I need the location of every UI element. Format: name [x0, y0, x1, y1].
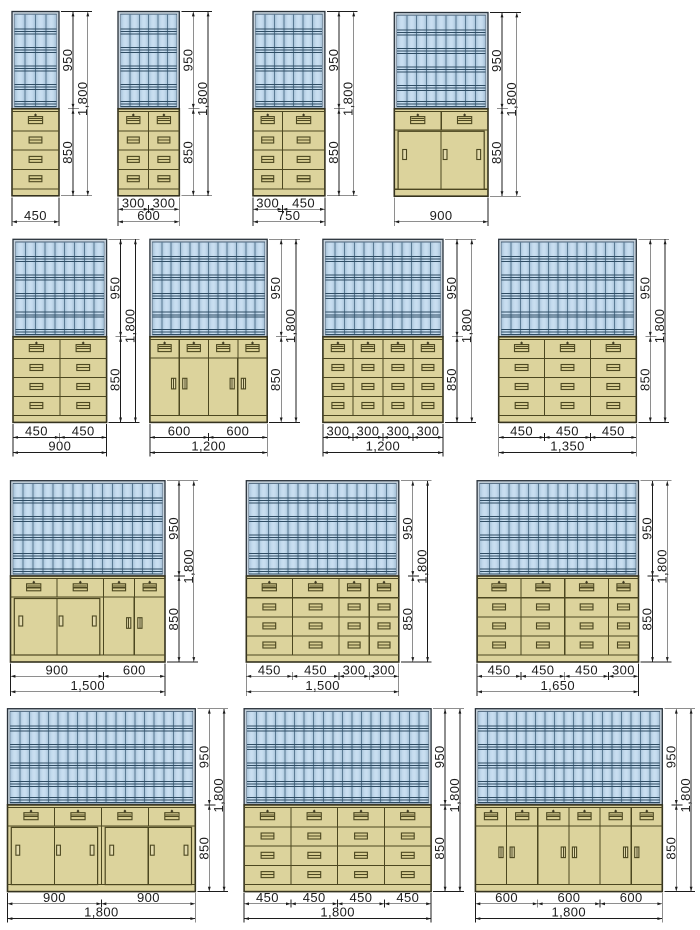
- svg-text:300: 300: [356, 423, 379, 438]
- svg-text:850: 850: [326, 141, 341, 164]
- svg-text:450: 450: [24, 208, 47, 223]
- svg-text:850: 850: [166, 608, 181, 631]
- svg-text:1,800: 1,800: [504, 82, 519, 117]
- svg-text:600: 600: [557, 890, 580, 905]
- svg-text:950: 950: [663, 745, 678, 768]
- svg-text:850: 850: [663, 837, 678, 860]
- svg-text:1,350: 1,350: [550, 439, 585, 454]
- svg-text:300: 300: [416, 423, 439, 438]
- svg-text:1,800: 1,800: [678, 778, 693, 813]
- svg-text:1,200: 1,200: [366, 439, 401, 454]
- svg-text:600: 600: [168, 423, 191, 438]
- svg-text:1,800: 1,800: [341, 81, 356, 116]
- svg-text:900: 900: [46, 662, 69, 677]
- svg-text:1,800: 1,800: [122, 309, 137, 344]
- svg-text:1,800: 1,800: [447, 778, 462, 813]
- svg-text:450: 450: [350, 890, 373, 905]
- svg-text:950: 950: [166, 517, 181, 540]
- svg-text:850: 850: [60, 141, 75, 164]
- svg-text:450: 450: [25, 423, 48, 438]
- svg-text:600: 600: [137, 208, 160, 223]
- svg-text:450: 450: [602, 423, 625, 438]
- svg-text:1,200: 1,200: [191, 439, 226, 454]
- svg-text:850: 850: [400, 608, 415, 631]
- svg-text:950: 950: [432, 745, 447, 768]
- svg-text:300: 300: [326, 423, 349, 438]
- svg-text:1,800: 1,800: [181, 549, 196, 584]
- svg-text:1,800: 1,800: [211, 778, 226, 813]
- svg-text:850: 850: [196, 837, 211, 860]
- svg-text:300: 300: [256, 195, 279, 210]
- svg-text:450: 450: [256, 890, 279, 905]
- svg-text:1,800: 1,800: [320, 905, 355, 920]
- svg-text:1,800: 1,800: [283, 309, 298, 344]
- svg-text:1,800: 1,800: [84, 905, 119, 920]
- svg-text:900: 900: [430, 208, 453, 223]
- svg-text:1,650: 1,650: [541, 678, 576, 693]
- svg-text:450: 450: [303, 890, 326, 905]
- svg-text:850: 850: [108, 368, 123, 391]
- svg-text:850: 850: [489, 141, 504, 164]
- svg-text:450: 450: [72, 423, 95, 438]
- svg-text:1,500: 1,500: [305, 678, 340, 693]
- svg-text:950: 950: [444, 277, 459, 300]
- svg-text:450: 450: [531, 662, 554, 677]
- svg-text:450: 450: [556, 423, 579, 438]
- svg-text:1,800: 1,800: [459, 309, 474, 344]
- svg-text:1,800: 1,800: [415, 549, 430, 584]
- svg-text:1,800: 1,800: [195, 81, 210, 116]
- svg-text:900: 900: [48, 439, 71, 454]
- svg-text:1,500: 1,500: [71, 678, 106, 693]
- svg-text:450: 450: [258, 662, 281, 677]
- svg-text:850: 850: [640, 608, 655, 631]
- svg-text:450: 450: [488, 662, 511, 677]
- svg-text:850: 850: [637, 368, 652, 391]
- svg-text:1,800: 1,800: [652, 309, 667, 344]
- svg-text:300: 300: [373, 662, 396, 677]
- svg-text:600: 600: [123, 662, 146, 677]
- svg-text:300: 300: [612, 662, 635, 677]
- svg-text:600: 600: [620, 890, 643, 905]
- svg-text:950: 950: [637, 277, 652, 300]
- svg-text:450: 450: [575, 662, 598, 677]
- svg-text:950: 950: [60, 49, 75, 72]
- svg-text:1,800: 1,800: [75, 81, 90, 116]
- svg-text:450: 450: [396, 890, 419, 905]
- svg-text:950: 950: [640, 517, 655, 540]
- svg-text:950: 950: [180, 49, 195, 72]
- svg-text:950: 950: [196, 745, 211, 768]
- svg-text:950: 950: [489, 49, 504, 72]
- svg-text:300: 300: [343, 662, 366, 677]
- svg-text:900: 900: [137, 890, 160, 905]
- svg-text:950: 950: [326, 49, 341, 72]
- svg-text:850: 850: [180, 141, 195, 164]
- svg-text:750: 750: [277, 208, 300, 223]
- svg-text:850: 850: [268, 368, 283, 391]
- svg-text:600: 600: [226, 423, 249, 438]
- svg-text:450: 450: [304, 662, 327, 677]
- svg-text:850: 850: [432, 837, 447, 860]
- svg-text:950: 950: [268, 277, 283, 300]
- svg-text:950: 950: [400, 517, 415, 540]
- svg-text:900: 900: [43, 890, 66, 905]
- svg-text:950: 950: [108, 277, 123, 300]
- svg-text:600: 600: [495, 890, 518, 905]
- svg-text:850: 850: [444, 368, 459, 391]
- svg-text:300: 300: [386, 423, 409, 438]
- svg-text:1,800: 1,800: [552, 905, 587, 920]
- svg-text:450: 450: [510, 423, 533, 438]
- svg-text:1,800: 1,800: [654, 549, 669, 584]
